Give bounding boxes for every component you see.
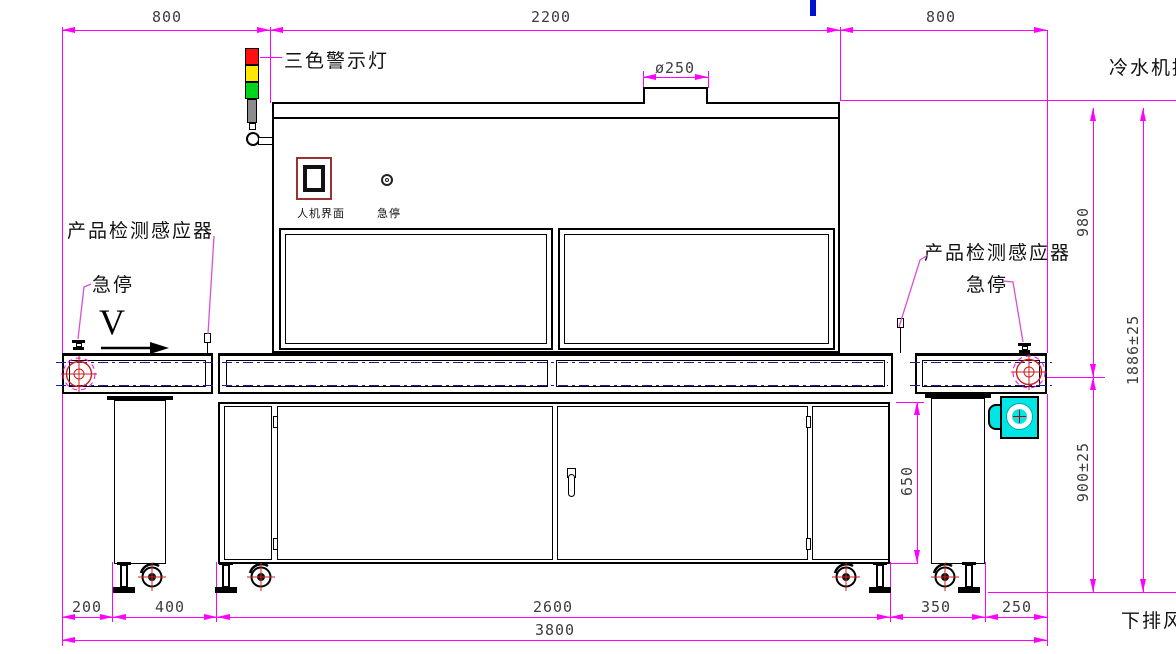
- leader-lines: [78, 236, 1023, 342]
- sensor-right-leader: [899, 255, 928, 327]
- caster: [138, 563, 166, 591]
- caster: [931, 563, 959, 591]
- caster-wheels: [138, 563, 959, 591]
- engineering-drawing-sheet: 人机界面 急停 三色警示灯: [0, 0, 1176, 654]
- roller-right: [1011, 354, 1047, 390]
- estop-right-leader: [1003, 281, 1023, 342]
- estop-left-leader: [78, 284, 91, 339]
- caster: [832, 563, 860, 591]
- sensor-left-leader: [208, 236, 214, 334]
- overlay-graphics: [0, 0, 1176, 654]
- roller-left: [61, 356, 97, 392]
- belt-direction-arrow: [101, 342, 169, 354]
- caster: [247, 563, 275, 591]
